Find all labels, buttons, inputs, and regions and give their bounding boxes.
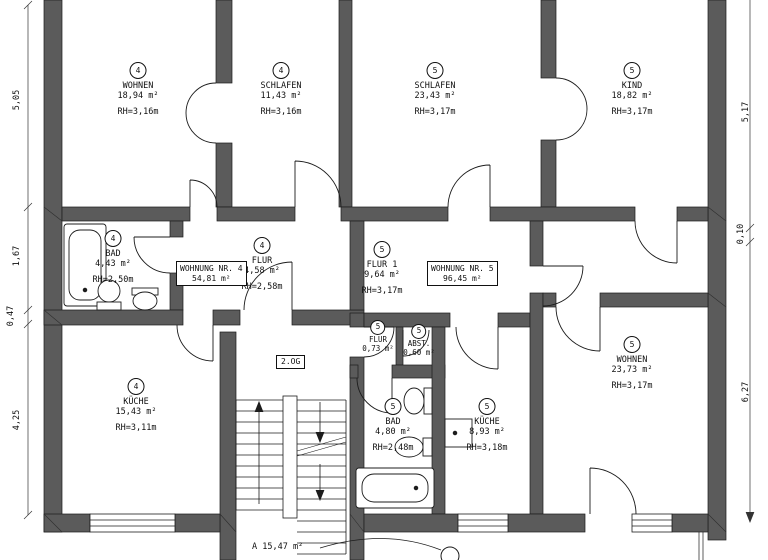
room-area: 8,93 m² [467,428,508,438]
room-label-flur1-5: 5 FLUR 1 9,64 m² RH=3,17m [362,241,403,297]
room-label-abst-5: 5 ABST. 0,60 m² [403,324,435,357]
room-height: RH=3,16m [261,108,302,118]
window-wohnen5 [632,514,672,532]
room-number-badge: 5 [384,398,401,415]
room-label-bad-4: 4 BAD 4,43 m² RH=2,50m [93,230,134,286]
floor-level-box: 2.OG [276,355,305,369]
room-height: RH=2,58m [242,283,283,293]
room-area: 4,80 m² [373,428,414,438]
stair-break-line [297,437,346,456]
apartment-4-label-box: WOHNUNG NR. 4 54,81 m² [176,261,247,286]
dim-left-2: 1,67 [12,238,22,274]
dim-left-4: 4,25 [12,402,22,438]
room-area: 15,43 m² [116,408,157,418]
stair-number-badge [441,547,459,560]
door-kueche5 [456,327,498,369]
stair-treads-left [236,400,283,510]
room-label-kueche-5: 5 KÜCHE 8,93 m² RH=3,18m [467,398,508,454]
room-height: RH=3,11m [116,424,157,434]
apartment-area: 96,45 m² [431,274,494,284]
room-number-badge: 5 [623,62,640,79]
room-number-badge: 5 [373,241,390,258]
room-number-badge: 4 [104,230,121,247]
room-area: 18,94 m² [118,92,159,102]
room-label-wohnen-4: 4 WOHNEN 18,94 m² RH=3,16m [118,62,159,118]
room-label-wohnen-5: 5 WOHNEN 23,73 m² RH=3,17m [612,336,653,392]
double-door-wohnen4-schlafen4 [186,83,216,143]
room-height: RH=3,17m [612,108,653,118]
room-area: 9,64 m² [362,271,403,281]
room-label-schlafen-4: 4 SCHLAFEN 11,43 m² RH=3,16m [261,62,302,118]
room-height: RH=3,16m [118,108,159,118]
apartment-5-label-box: WOHNUNG NR. 5 96,45 m² [427,261,498,286]
door-kueche4 [177,325,213,361]
room-area: 4,58 m² [242,267,283,277]
downpipe [699,532,703,560]
room-height: RH=3,17m [362,287,403,297]
room-height: RH=3,17m [415,108,456,118]
room-number-badge: 5 [426,62,443,79]
door-kind [635,221,677,263]
room-area: 0,73 m² [362,345,394,354]
room-height: RH=3,18m [467,444,508,454]
room-area: 4,43 m² [93,260,134,270]
room-number-badge: 4 [272,62,289,79]
dim-right-1: 5,17 [741,94,751,130]
room-number-badge: 5 [370,320,385,335]
room-area: 23,73 m² [612,366,653,376]
stair-treads-right [297,400,346,554]
room-number-badge: 5 [411,324,426,339]
room-number-badge: 5 [478,398,495,415]
room-label-flur-5: 5 FLUR 0,73 m² [362,320,394,353]
dim-right-3: 6,27 [741,374,751,410]
dim-right-2: 0,10 [736,216,746,252]
apartment-area: 54,81 m² [180,274,243,284]
room-label-flur-4: 4 FLUR 4,58 m² RH=2,58m [242,237,283,293]
double-door-schlafen5-kind [556,78,587,140]
bathtub-bad5 [356,468,434,508]
door-schlafen4 [295,161,341,207]
door-wohnen5 [556,307,600,351]
dim-left-1: 5,05 [12,82,22,118]
room-number-badge: 4 [129,62,146,79]
room-height: RH=3,17m [612,382,653,392]
room-number-badge: 5 [623,336,640,353]
room-label-schlafen-5: 5 SCHLAFEN 23,43 m² RH=3,17m [415,62,456,118]
door-bad4 [134,237,170,273]
room-number-badge: 4 [253,237,270,254]
apartment-name: WOHNUNG NR. 4 [180,264,243,274]
door-wohnen4 [190,180,217,207]
room-height: RH=2,48m [373,444,414,454]
room-area: 11,43 m² [261,92,302,102]
room-height: RH=2,50m [93,276,134,286]
room-area: 0,60 m² [403,349,435,358]
door-schlafen5 [448,165,490,207]
window-kueche4 [90,514,175,532]
room-label-kueche-4: 4 KÜCHE 15,43 m² RH=3,11m [116,378,157,434]
stairwell-area-label: A 15,47 m² [252,542,303,552]
stair-label-leader [320,538,441,550]
dim-left-3: 0,47 [6,298,16,334]
floorplan-canvas: 4 WOHNEN 18,94 m² RH=3,16m 4 SCHLAFEN 11… [0,0,768,560]
room-area: 23,43 m² [415,92,456,102]
apartment-name: WOHNUNG NR. 5 [431,264,494,274]
room-label-kind-5: 5 KIND 18,82 m² RH=3,17m [612,62,653,118]
sink-bad4 [132,288,158,310]
room-label-bad-5: 5 BAD 4,80 m² RH=2,48m [373,398,414,454]
window-kueche5 [458,514,508,532]
floor-level-label: 2.OG [281,357,300,366]
room-number-badge: 4 [127,378,144,395]
room-area: 18,82 m² [612,92,653,102]
door-balcony-wohnen5 [590,468,636,514]
